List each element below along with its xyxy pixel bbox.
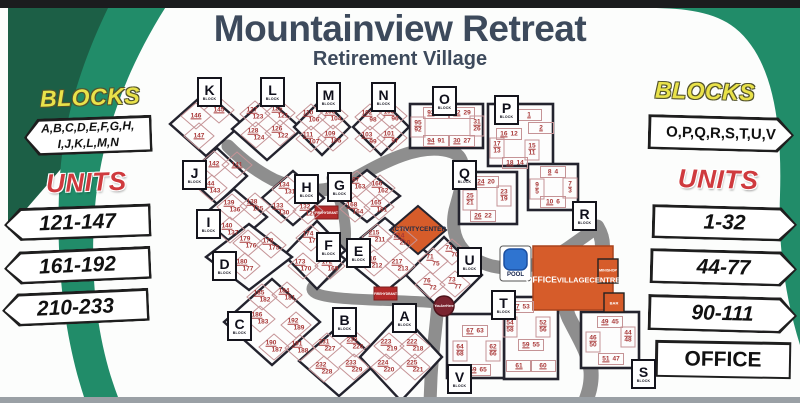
unit-cell: 146 xyxy=(191,112,202,119)
left-range-1: 121-147 xyxy=(39,209,117,236)
fire-hydrant-label-2: FIREHYDRANT xyxy=(374,291,397,295)
block-tag-D: DBLOCK xyxy=(212,251,237,281)
unit-cell: 110106 xyxy=(306,110,317,125)
unit-cell: 184181 xyxy=(282,288,293,303)
right-range-box-3: 90-111 xyxy=(648,294,798,334)
unit-cell: 6763 xyxy=(466,327,483,334)
unit-cell: 5955 xyxy=(522,341,539,348)
pool-label: POOL xyxy=(507,272,524,278)
block-tag-J: JBLOCK xyxy=(182,160,207,190)
unit-cell: 1612 xyxy=(500,130,517,137)
unit-cell: 95 xyxy=(535,182,539,197)
unit-cell: 7175 xyxy=(429,254,436,269)
unit-cell: 2319 xyxy=(500,189,507,204)
unit-cell: 139136 xyxy=(227,200,238,215)
block-tag-M: MBLOCK xyxy=(316,82,341,112)
unit-cell: 10399 xyxy=(365,132,376,147)
right-range-box-1: 1-32 xyxy=(652,204,798,242)
unit-cell: 1 xyxy=(527,111,531,118)
unit-cell: 4945 xyxy=(601,318,618,325)
left-block-letters-line2: I,J,K,L,M,N xyxy=(57,134,119,152)
unit-cell: 222218 xyxy=(410,339,421,354)
unit-cell: 6266 xyxy=(489,344,496,359)
office-sign-label: OFFICE xyxy=(684,347,761,372)
you-are-here-marker-label: YouAreHere xyxy=(434,304,453,308)
unit-cell: 132129 xyxy=(303,204,314,219)
block-tag-G: GBLOCK xyxy=(327,172,352,202)
unit-cell: 7672 xyxy=(426,278,433,293)
unit-cell: 185182 xyxy=(257,290,268,305)
right-range-3: 90-111 xyxy=(691,301,754,327)
unit-cell: 140137 xyxy=(225,223,236,238)
unit-cell: 147 xyxy=(194,132,205,139)
block-tag-N: NBLOCK xyxy=(371,82,396,112)
unit-cell: 2 xyxy=(539,124,543,131)
unit-cell: 4448 xyxy=(624,330,631,345)
unit-cell: 61 xyxy=(515,362,522,369)
unit-cell: 5256 xyxy=(539,320,546,335)
unit-cell: 141 xyxy=(232,161,243,168)
block-tag-O: OBLOCK xyxy=(432,86,457,116)
right-range-1: 1-32 xyxy=(703,210,746,235)
left-range-box-2: 161-192 xyxy=(3,246,151,285)
left-units-label: UNITS xyxy=(45,166,127,200)
left-range-2: 161-192 xyxy=(38,252,116,279)
block-tag-I: IBLOCK xyxy=(196,209,221,239)
unit-cell: 133130 xyxy=(276,203,287,218)
left-block-letters-box: A,B,C,D,E,F,G,H, I,J,K,L,M,N xyxy=(23,115,152,156)
unit-cell: 73 xyxy=(568,181,572,196)
unit-cell: 167163 xyxy=(352,177,363,192)
unit-cell: 84 xyxy=(548,168,558,175)
block-tag-H: HBLOCK xyxy=(294,174,319,204)
unit-cell: 144143 xyxy=(207,181,218,196)
block-tag-B: BBLOCK xyxy=(332,307,357,337)
office-village-centre-label: OFFICEVILLAGECENTRE xyxy=(526,274,621,285)
left-range-3: 210-233 xyxy=(36,294,114,321)
unit-cell: 7377 xyxy=(451,277,458,292)
sign-frame-bottom xyxy=(0,397,800,403)
block-tag-Q: QBLOCK xyxy=(452,160,477,190)
unit-cell: 233229 xyxy=(349,360,360,375)
block-tag-P: PBLOCK xyxy=(494,95,519,125)
left-range-box-3: 210-233 xyxy=(1,288,149,327)
unit-cell: 224220 xyxy=(381,360,392,375)
unit-cell: 142 xyxy=(209,160,220,167)
unit-cell: 231227 xyxy=(322,339,333,354)
unit-cell: 2521 xyxy=(466,193,473,208)
unit-cell: 1713 xyxy=(493,141,500,156)
unit-cell: 138135 xyxy=(250,199,261,214)
unit-cell: 5147 xyxy=(602,355,619,362)
unit-cell: 2420 xyxy=(477,178,494,185)
block-tag-E: EBLOCK xyxy=(346,238,371,268)
mini-shop-label: MINISHOP xyxy=(599,269,617,274)
unit-cell: 223219 xyxy=(384,339,395,354)
block-tag-K: KBLOCK xyxy=(197,77,222,107)
unit-cell: 215211 xyxy=(372,230,383,245)
right-units-label: UNITS xyxy=(678,163,759,196)
block-tag-R: RBLOCK xyxy=(572,201,597,231)
unit-cell: 126122 xyxy=(275,126,286,141)
right-blocks-label: BLOCKS xyxy=(655,77,756,107)
unit-cell: 217213 xyxy=(395,259,406,274)
unit-cell: 190187 xyxy=(269,340,280,355)
left-blocks-label: BLOCKS xyxy=(40,82,141,112)
unit-cell: 178175 xyxy=(266,238,277,253)
right-range-box-2: 44-77 xyxy=(650,248,798,287)
block-tag-T: TBLOCK xyxy=(491,290,516,320)
unit-cell: 180177 xyxy=(240,259,251,274)
unit-cell: 192189 xyxy=(291,318,302,333)
activity-center-label: ACTIVITYCENTER xyxy=(390,226,446,234)
block-tag-S: SBLOCK xyxy=(631,359,656,389)
block-tag-V: VBLOCK xyxy=(447,364,472,394)
unit-cell: 166162 xyxy=(375,181,386,196)
unit-cell: 214210 xyxy=(397,233,408,248)
left-range-box-1: 121-147 xyxy=(3,203,151,241)
right-block-letters: O,P,Q,R,S,T,U,V xyxy=(666,124,776,144)
block-tag-F: FBLOCK xyxy=(316,232,341,262)
unit-cell: 128124 xyxy=(251,128,262,143)
unit-cell: 5458 xyxy=(506,320,513,335)
unit-cell: 1511 xyxy=(528,143,535,158)
unit-cell: 179176 xyxy=(243,236,254,251)
left-block-letters-line1: A,B,C,D,E,F,G,H, xyxy=(41,118,135,137)
unit-cell: 225221 xyxy=(410,360,421,375)
right-block-letters-box: O,P,Q,R,S,T,U,V xyxy=(648,114,795,153)
unit-cell: 9592 xyxy=(414,120,421,135)
unit-cell: 230226 xyxy=(350,337,361,352)
unit-cell: 7470 xyxy=(448,245,455,260)
unit-cell: 60 xyxy=(539,362,546,369)
block-tag-L: LBLOCK xyxy=(260,77,285,107)
unit-cell: 127123 xyxy=(250,107,261,122)
unit-cell: 1814 xyxy=(506,159,523,166)
right-range-2: 44-77 xyxy=(696,255,750,280)
unit-cell: 174171 xyxy=(306,231,317,246)
unit-cell: 3126 xyxy=(473,119,480,134)
unit-cell: 232228 xyxy=(319,362,330,377)
unit-cell: 3027 xyxy=(453,137,470,144)
unit-cell: 10197 xyxy=(387,131,398,146)
unit-cell: 4650 xyxy=(589,335,596,350)
unit-cell: 6468 xyxy=(456,344,463,359)
unit-cell: 106 xyxy=(546,198,560,205)
office-sign-box: OFFICE xyxy=(655,340,792,379)
unit-cell: 165161 xyxy=(374,200,385,215)
page-title: Mountainview Retreat xyxy=(0,8,800,50)
bar-label: BAR xyxy=(610,300,619,305)
unit-cell: 168164 xyxy=(350,202,361,217)
unit-cell: 173170 xyxy=(298,259,309,274)
fire-hydrant-label-1: FIREHYDRANT xyxy=(315,210,338,214)
unit-cell: 145 xyxy=(214,106,225,113)
block-tag-C: CBLOCK xyxy=(227,311,252,341)
unit-cell: 186183 xyxy=(255,312,266,327)
page-subtitle: Retirement Village xyxy=(0,48,800,71)
unit-cell: 111107 xyxy=(306,132,317,147)
block-tag-A: ABLOCK xyxy=(392,303,417,333)
unit-cell: 191188 xyxy=(295,341,306,356)
unit-cell: 9491 xyxy=(427,137,444,144)
unit-cell: 134131 xyxy=(282,182,293,197)
block-tag-U: UBLOCK xyxy=(457,247,482,277)
unit-cell: 2622 xyxy=(474,212,491,219)
unit-cell: 125121 xyxy=(275,106,286,121)
unit-cell: 109105 xyxy=(328,131,339,146)
